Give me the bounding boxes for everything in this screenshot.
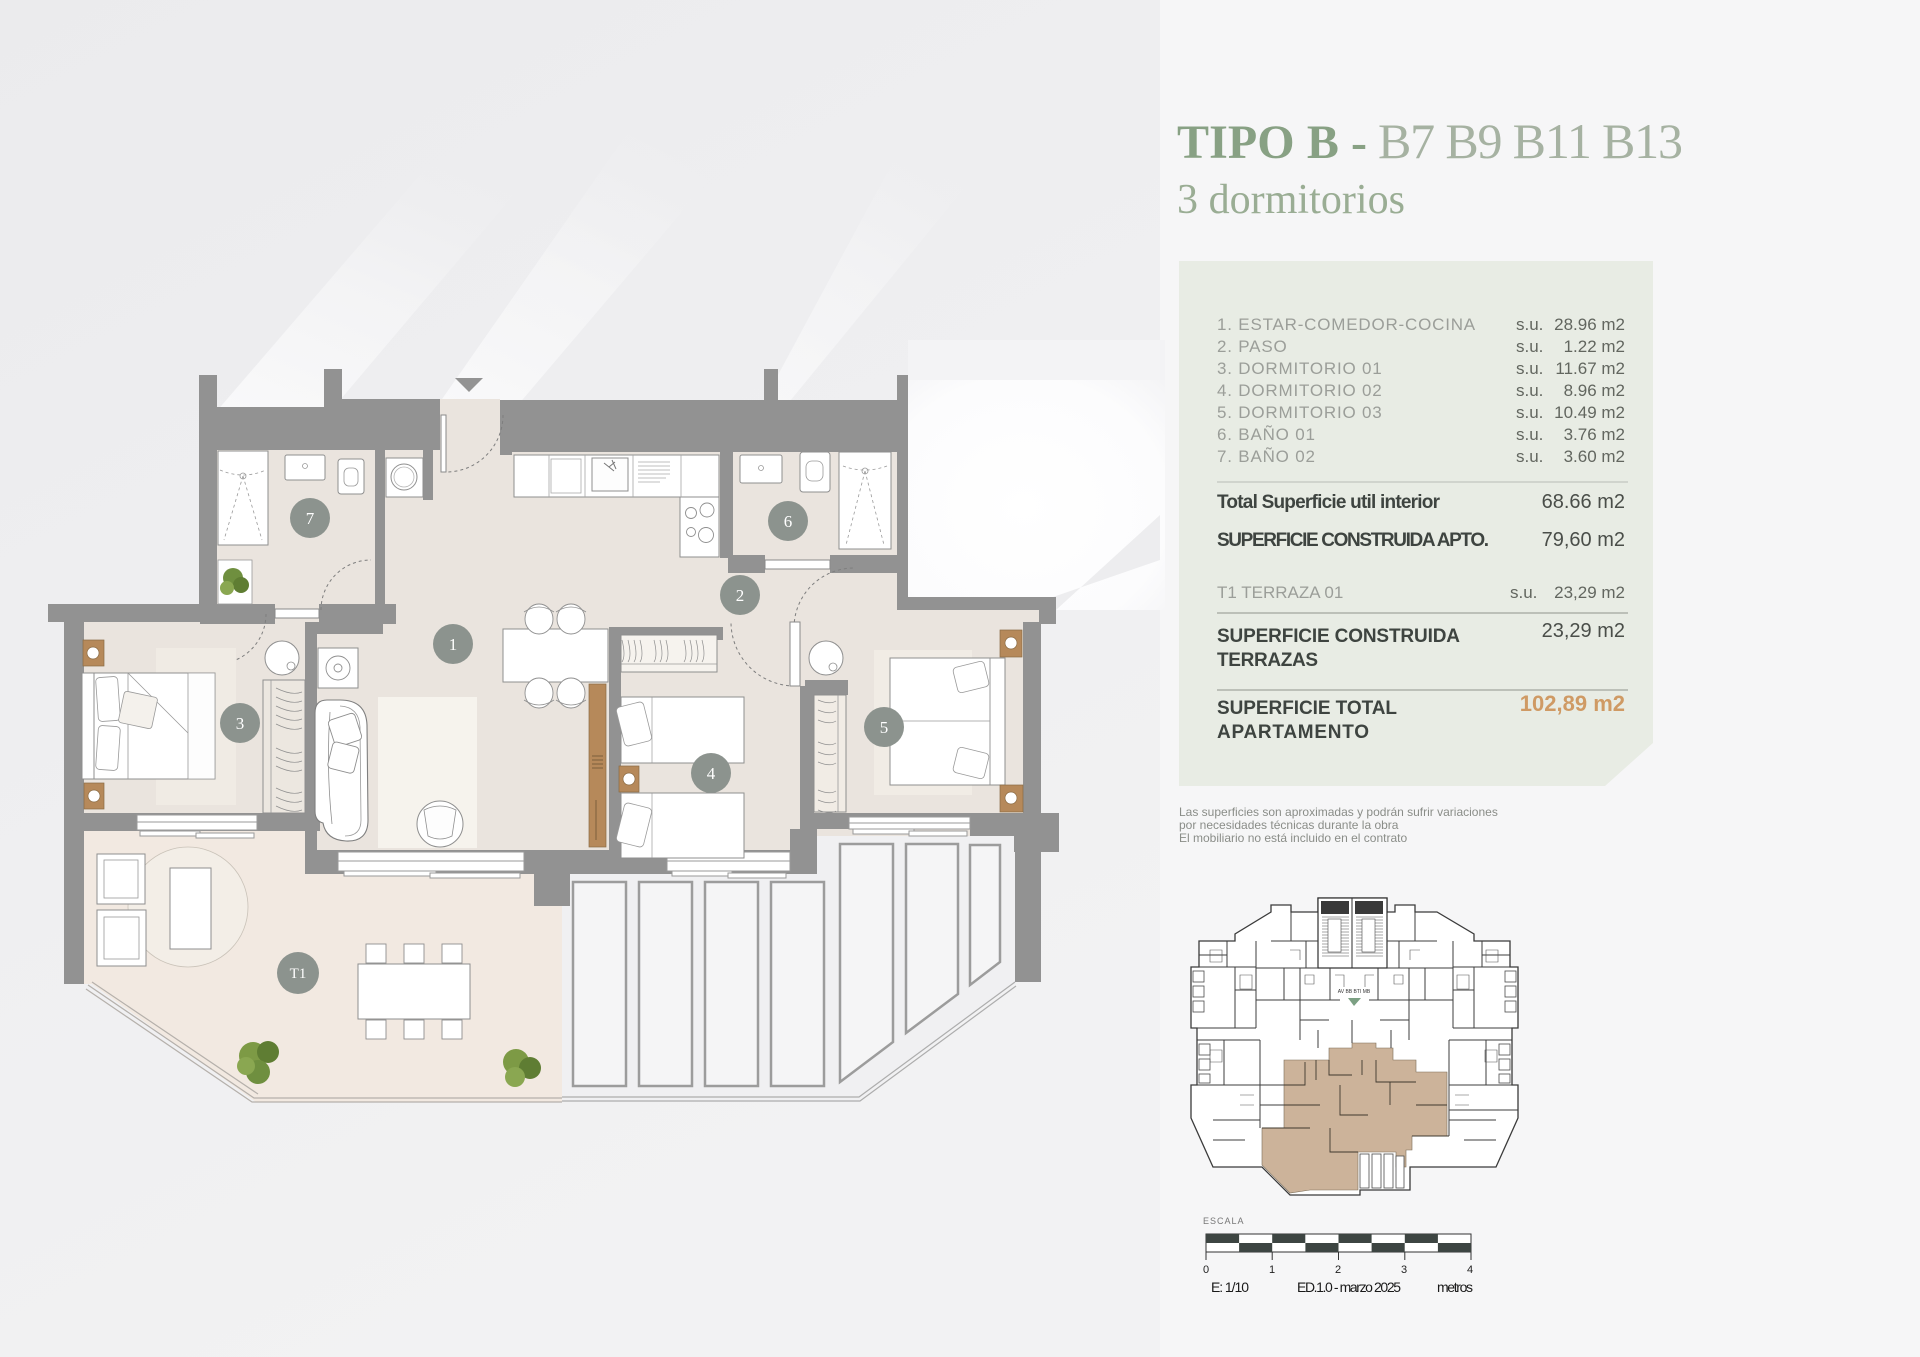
svg-text:79,60 m2: 79,60 m2 xyxy=(1542,529,1625,551)
svg-text:APARTAMENTO: APARTAMENTO xyxy=(1217,722,1369,743)
svg-text:1. ESTAR-COMEDOR-COCINA: 1. ESTAR-COMEDOR-COCINA xyxy=(1217,315,1476,334)
svg-text:s.u.: s.u. xyxy=(1510,583,1537,602)
svg-text:ESCALA: ESCALA xyxy=(1203,1216,1245,1226)
svg-text:s.u.: s.u. xyxy=(1516,315,1543,334)
svg-text:T1: T1 xyxy=(290,966,307,982)
svg-text:TERRAZAS: TERRAZAS xyxy=(1217,650,1318,671)
svg-text:2: 2 xyxy=(1335,1264,1341,1276)
svg-text:0: 0 xyxy=(1203,1264,1209,1276)
svg-text:4: 4 xyxy=(1467,1264,1473,1276)
svg-text:102,89 m2: 102,89 m2 xyxy=(1520,691,1625,716)
svg-text:3: 3 xyxy=(236,714,245,733)
svg-text:s.u.: s.u. xyxy=(1516,403,1543,422)
svg-text:6. BAÑO 01: 6. BAÑO 01 xyxy=(1217,425,1316,444)
svg-text:5: 5 xyxy=(880,718,889,737)
svg-text:El mobiliario no está incluido: El mobiliario no está incluido en el con… xyxy=(1179,831,1407,845)
svg-text:metros: metros xyxy=(1437,1279,1473,1295)
svg-text:7: 7 xyxy=(306,509,315,528)
svg-text:11.67 m2: 11.67 m2 xyxy=(1555,359,1625,378)
svg-text:3.76 m2: 3.76 m2 xyxy=(1564,425,1625,444)
svg-text:68.66 m2: 68.66 m2 xyxy=(1542,491,1625,513)
svg-text:1.22 m2: 1.22 m2 xyxy=(1564,337,1625,356)
svg-text:10.49 m2: 10.49 m2 xyxy=(1554,403,1625,422)
svg-text:s.u.: s.u. xyxy=(1516,381,1543,400)
svg-text:E: 1/10: E: 1/10 xyxy=(1211,1279,1249,1295)
svg-text:SUPERFICIE TOTAL: SUPERFICIE TOTAL xyxy=(1217,698,1397,719)
svg-text:6: 6 xyxy=(784,512,793,531)
svg-text:TIPO B -: TIPO B - xyxy=(1177,116,1367,169)
svg-text:2: 2 xyxy=(736,586,745,605)
svg-text:Las superficies son aproximada: Las superficies son aproximadas y podrán… xyxy=(1179,805,1498,819)
svg-text:s.u.: s.u. xyxy=(1516,425,1543,444)
svg-text:4: 4 xyxy=(707,764,716,783)
svg-text:23,29 m2: 23,29 m2 xyxy=(1542,620,1625,642)
svg-text:AV BB BTI MB: AV BB BTI MB xyxy=(1338,989,1371,995)
svg-text:s.u.: s.u. xyxy=(1516,337,1543,356)
svg-text:28.96 m2: 28.96 m2 xyxy=(1554,315,1625,334)
svg-text:T1 TERRAZA 01: T1 TERRAZA 01 xyxy=(1217,583,1343,602)
svg-text:ED.1.0 - marzo 2025: ED.1.0 - marzo 2025 xyxy=(1297,1279,1401,1295)
svg-text:5. DORMITORIO 03: 5. DORMITORIO 03 xyxy=(1217,403,1383,422)
svg-text:1: 1 xyxy=(1269,1264,1275,1276)
svg-text:3 dormitorios: 3 dormitorios xyxy=(1177,177,1405,223)
svg-text:2. PASO: 2. PASO xyxy=(1217,337,1287,356)
svg-text:3.60 m2: 3.60 m2 xyxy=(1564,447,1625,466)
svg-text:1: 1 xyxy=(449,635,458,654)
svg-text:B7 B9 B11 B13: B7 B9 B11 B13 xyxy=(1378,113,1683,169)
svg-text:por necesidades técnicas duran: por necesidades técnicas durante la obra xyxy=(1179,818,1399,832)
svg-text:s.u.: s.u. xyxy=(1516,447,1543,466)
svg-text:SUPERFICIE CONSTRUIDA: SUPERFICIE CONSTRUIDA xyxy=(1217,626,1460,647)
svg-text:Total Superficie util interior: Total Superficie util interior xyxy=(1217,492,1441,513)
svg-text:7. BAÑO 02: 7. BAÑO 02 xyxy=(1217,447,1316,466)
svg-text:3: 3 xyxy=(1401,1264,1407,1276)
svg-text:23,29 m2: 23,29 m2 xyxy=(1554,583,1625,602)
svg-text:SUPERFICIE CONSTRUIDA APTO.: SUPERFICIE CONSTRUIDA APTO. xyxy=(1217,530,1489,551)
svg-text:s.u.: s.u. xyxy=(1516,359,1543,378)
svg-text:4. DORMITORIO 02: 4. DORMITORIO 02 xyxy=(1217,381,1383,400)
svg-text:8.96 m2: 8.96 m2 xyxy=(1564,381,1625,400)
svg-text:3. DORMITORIO 01: 3. DORMITORIO 01 xyxy=(1217,359,1383,378)
